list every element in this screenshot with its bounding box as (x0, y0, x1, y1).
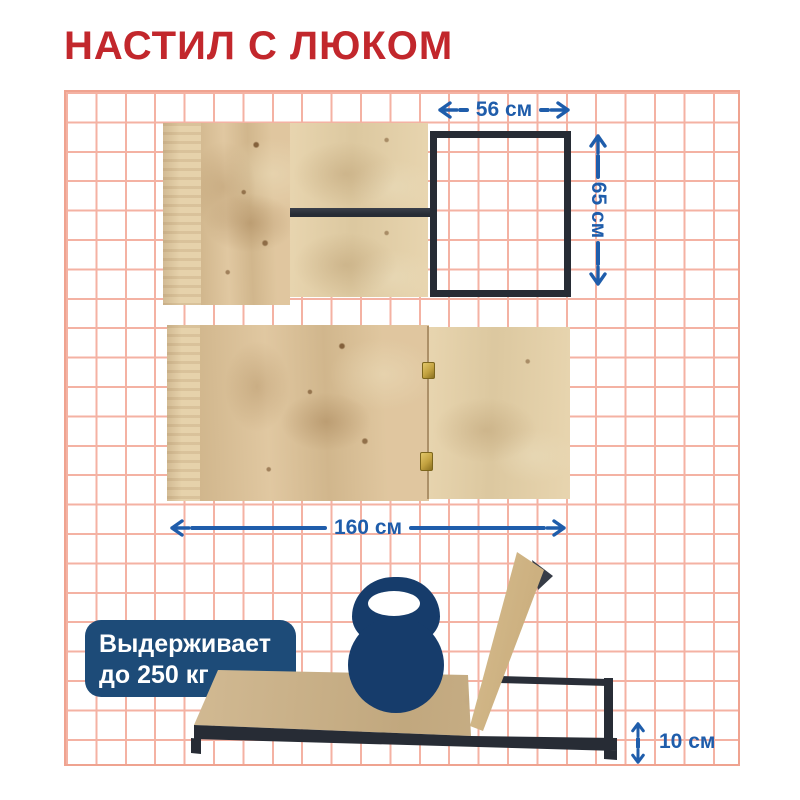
arrow-left-icon (170, 518, 190, 538)
arrow-right-icon (550, 100, 570, 120)
dimension-line (458, 108, 469, 112)
dimension-hatch-width: 56 см (438, 99, 570, 121)
hinge-icon (422, 362, 435, 379)
plywood-edge-strip (167, 325, 200, 501)
plywood-panel (290, 123, 428, 208)
plywood-panel (200, 325, 429, 501)
plywood-panel (290, 217, 428, 297)
dimension-line (596, 241, 600, 266)
open-hatch-frame (430, 131, 571, 297)
kettlebell-icon (348, 577, 444, 713)
plywood-panel (201, 123, 290, 305)
hatch-seam (427, 326, 429, 499)
arrow-right-icon (546, 518, 566, 538)
dimension-label: 10 см (659, 730, 715, 754)
dimension-label: 160 см (334, 516, 402, 540)
dimension-hatch-height: 65 см (586, 134, 610, 286)
page-title: НАСТИЛ С ЛЮКОМ (64, 24, 453, 69)
dimension-label: 56 см (476, 98, 532, 122)
dimension-label-wrap: 65 см (586, 179, 610, 241)
dimension-deck-length: 160 см (170, 517, 566, 539)
dimension-line (409, 526, 546, 530)
plywood-edge-strip (163, 123, 201, 305)
dimension-line (596, 154, 600, 179)
kettlebell-handle-hole (368, 591, 420, 616)
kettlebell-body (348, 617, 444, 713)
arrow-up-icon (588, 134, 608, 154)
metal-crossbar (290, 208, 437, 217)
hatch-door-panel (429, 327, 570, 499)
dimension-line (190, 526, 327, 530)
infographic-page: НАСТИЛ С ЛЮКОМ 56 см 65 см (0, 0, 800, 800)
dimension-line (539, 108, 550, 112)
arrow-left-icon (438, 100, 458, 120)
dimension-label: 65 см (586, 182, 610, 238)
hinge-icon (420, 452, 433, 471)
arrow-down-icon (588, 266, 608, 286)
